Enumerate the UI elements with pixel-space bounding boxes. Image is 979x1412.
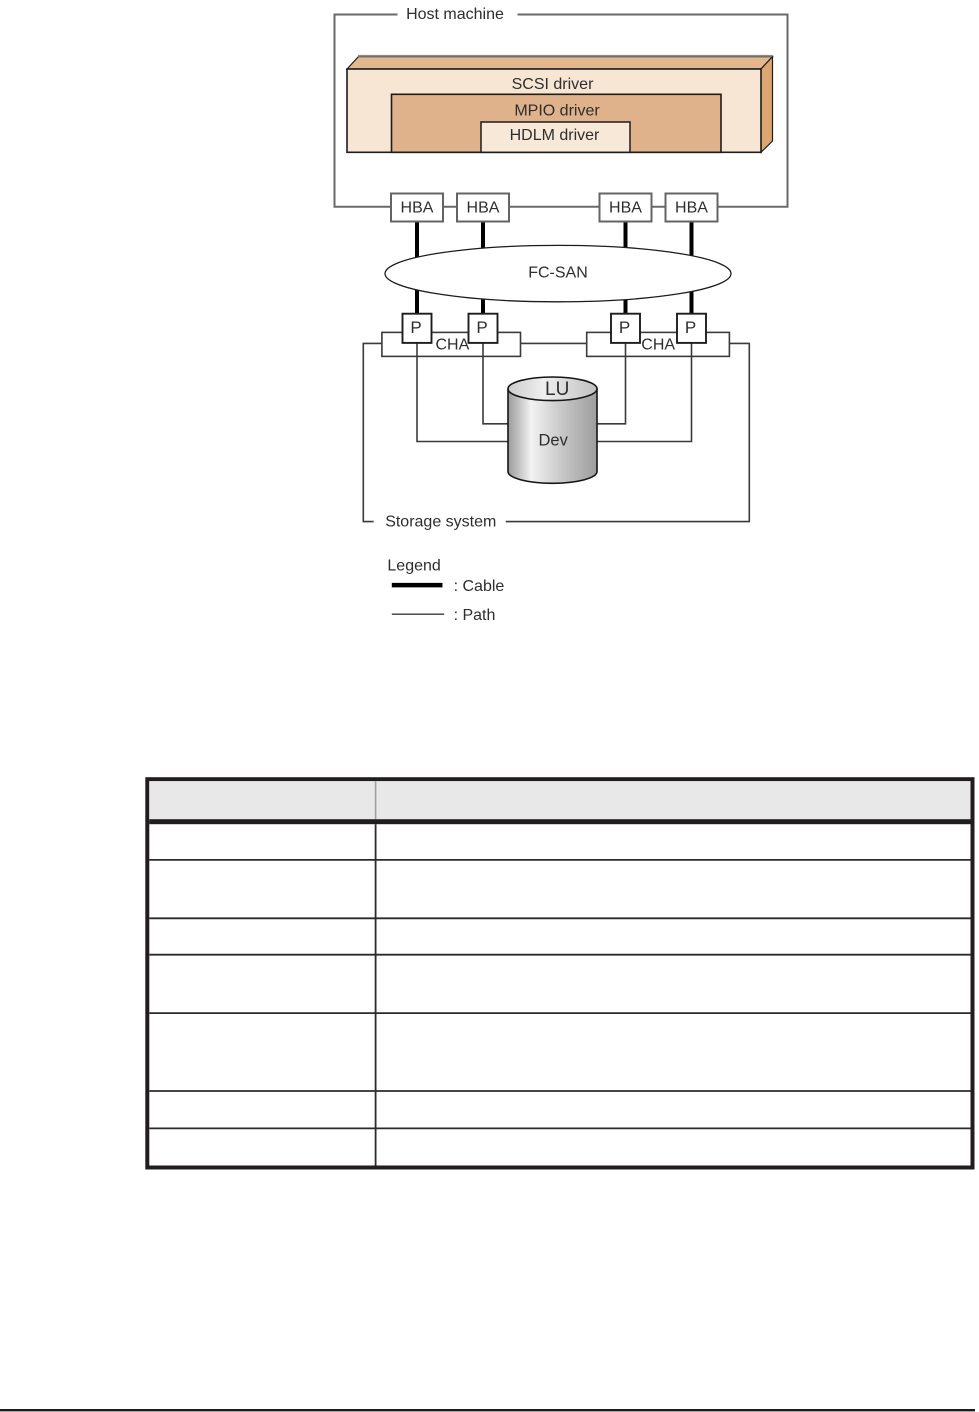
svg-text:Legend: Legend (387, 558, 440, 575)
svg-text:: Path: : Path (454, 607, 496, 624)
svg-text:HBA: HBA (401, 199, 434, 216)
svg-text:P: P (476, 318, 487, 337)
svg-text:Dev: Dev (539, 431, 569, 449)
svg-text:Host machine: Host machine (406, 6, 504, 23)
svg-text:P: P (410, 318, 421, 337)
svg-text:SCSI driver: SCSI driver (512, 76, 594, 93)
svg-text:Storage system: Storage system (385, 514, 496, 531)
svg-text:HBA: HBA (609, 199, 642, 216)
svg-text:HBA: HBA (675, 199, 708, 216)
svg-text:MPIO driver: MPIO driver (514, 103, 600, 120)
svg-text:P: P (685, 318, 696, 337)
svg-text:CHA: CHA (436, 337, 470, 354)
svg-text:: Cable: : Cable (454, 578, 505, 595)
svg-text:CHA: CHA (641, 337, 675, 354)
svg-text:HBA: HBA (467, 199, 500, 216)
svg-text:P: P (619, 318, 630, 337)
svg-text:HDLM driver: HDLM driver (510, 127, 600, 144)
svg-text:FC-SAN: FC-SAN (528, 265, 588, 282)
svg-text:LU: LU (545, 379, 569, 400)
